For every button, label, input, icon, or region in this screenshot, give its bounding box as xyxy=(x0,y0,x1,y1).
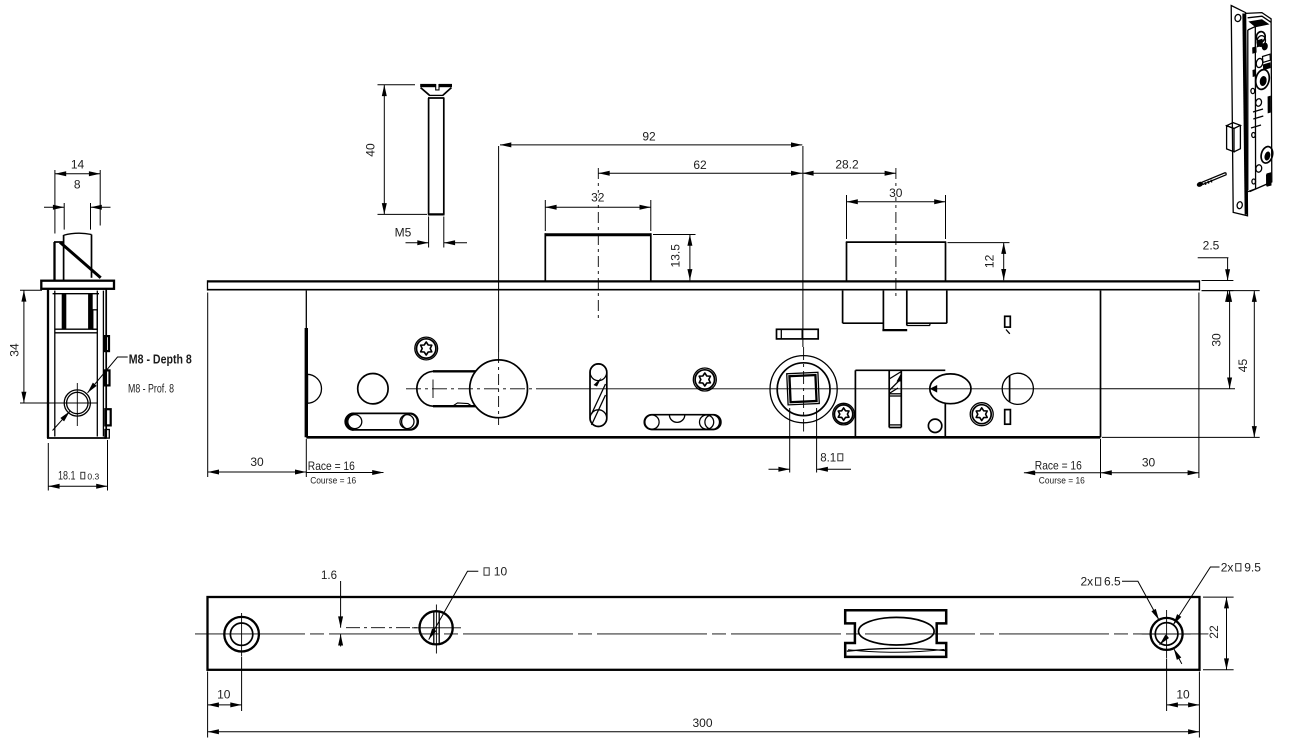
svg-text:8: 8 xyxy=(74,177,81,191)
svg-text:M8 - Depth 8: M8 - Depth 8 xyxy=(129,352,192,367)
svg-text:9.5: 9.5 xyxy=(1244,561,1261,575)
svg-text:300: 300 xyxy=(692,716,712,730)
svg-text:40: 40 xyxy=(364,143,378,157)
svg-text:M5: M5 xyxy=(395,226,412,240)
svg-text:28.2: 28.2 xyxy=(835,158,859,172)
svg-text:18.1: 18.1 xyxy=(58,471,76,483)
svg-text:13.5: 13.5 xyxy=(669,244,683,268)
svg-text:Course = 16: Course = 16 xyxy=(1039,476,1085,486)
svg-text:2.5: 2.5 xyxy=(1203,238,1220,252)
svg-text:62: 62 xyxy=(693,158,707,172)
svg-text:12: 12 xyxy=(982,254,996,268)
svg-text:30: 30 xyxy=(889,186,903,200)
svg-text:M8 - Prof. 8: M8 - Prof. 8 xyxy=(128,384,174,396)
svg-text:6.5: 6.5 xyxy=(1104,575,1121,589)
svg-text:14: 14 xyxy=(71,157,85,171)
svg-text:10: 10 xyxy=(1176,687,1190,701)
svg-text:92: 92 xyxy=(642,129,656,143)
svg-text:10: 10 xyxy=(217,687,231,701)
svg-text:1.6: 1.6 xyxy=(321,570,337,582)
svg-text:32: 32 xyxy=(591,191,605,205)
svg-text:45: 45 xyxy=(1236,359,1250,373)
svg-text:10: 10 xyxy=(494,565,508,579)
svg-text:30: 30 xyxy=(1209,333,1223,347)
svg-text:8.1: 8.1 xyxy=(820,453,836,465)
svg-text:30: 30 xyxy=(1142,455,1156,469)
svg-text:0.3: 0.3 xyxy=(87,471,99,481)
svg-text:2x: 2x xyxy=(1081,575,1094,589)
svg-text:30: 30 xyxy=(250,455,264,469)
svg-text:34: 34 xyxy=(8,343,22,357)
svg-text:2x: 2x xyxy=(1221,561,1234,575)
svg-text:Race = 16: Race = 16 xyxy=(308,459,355,473)
svg-text:22: 22 xyxy=(1207,625,1221,639)
svg-text:Race = 16: Race = 16 xyxy=(1035,459,1082,473)
svg-text:Course = 16: Course = 16 xyxy=(310,475,356,485)
